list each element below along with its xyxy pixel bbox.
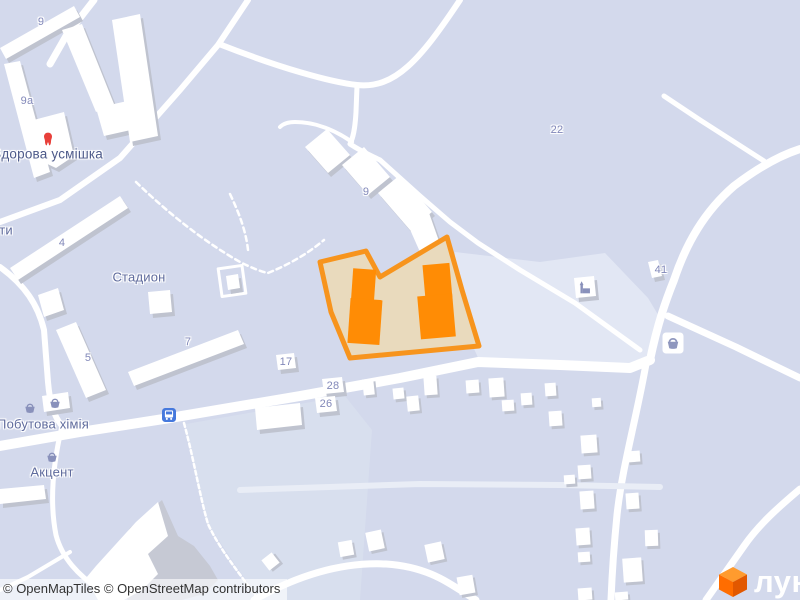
house	[548, 411, 562, 427]
lun-cube-icon	[719, 567, 747, 597]
house	[579, 491, 594, 510]
shop-basket-icon[interactable]	[48, 396, 63, 411]
shop-basket-boxed-icon[interactable]	[663, 333, 684, 354]
house	[627, 451, 641, 463]
church-icon[interactable]	[577, 280, 594, 297]
house	[338, 540, 354, 557]
house	[622, 557, 643, 582]
house	[575, 528, 590, 546]
map-attribution: © OpenMapTiles © OpenStreetMap contribut…	[0, 579, 287, 600]
building	[322, 377, 344, 394]
dentist-tooth-icon[interactable]	[40, 131, 56, 147]
openmaptiles-link[interactable]: © OpenMapTiles	[3, 581, 100, 596]
house	[578, 588, 593, 600]
lun-logo[interactable]: лун	[719, 566, 800, 597]
osm-contributors-link[interactable]: © OpenStreetMap contributors	[104, 581, 281, 596]
house	[457, 575, 476, 596]
house	[645, 530, 659, 546]
house	[521, 393, 533, 406]
house	[545, 383, 557, 397]
house	[488, 377, 504, 397]
house	[592, 398, 602, 408]
house	[406, 395, 420, 411]
house	[362, 378, 375, 395]
lun-logo-text: лун	[754, 566, 800, 597]
map-viewport[interactable]: © OpenMapTiles © OpenStreetMap contribut…	[0, 0, 800, 600]
house	[625, 493, 639, 510]
shop-basket-icon[interactable]	[45, 450, 60, 465]
house	[466, 380, 480, 394]
building	[148, 290, 172, 314]
house	[578, 552, 591, 563]
house	[578, 465, 592, 480]
house	[615, 592, 629, 600]
house	[502, 400, 515, 412]
house	[423, 376, 437, 396]
house	[580, 434, 597, 453]
house	[392, 387, 404, 399]
house	[564, 475, 576, 485]
bus-stop-icon[interactable]	[162, 408, 176, 422]
building	[226, 274, 240, 290]
map-canvas	[0, 0, 800, 600]
shop-basket-icon[interactable]	[23, 401, 38, 416]
building	[315, 396, 337, 413]
building	[276, 353, 296, 370]
